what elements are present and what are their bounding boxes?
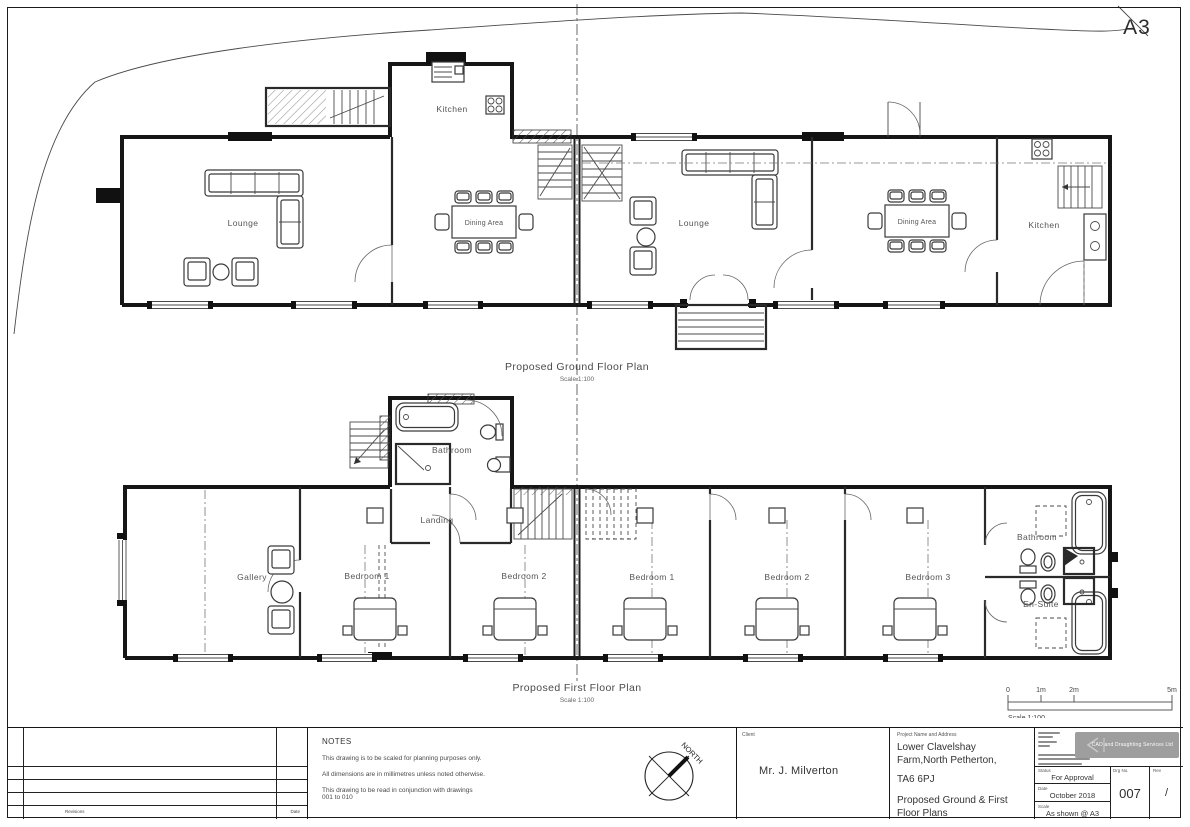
north-arrow: NORTH bbox=[632, 734, 708, 812]
date-cell: Date October 2018 bbox=[1035, 784, 1110, 802]
status-label: Status bbox=[1038, 768, 1051, 773]
company-fine-print bbox=[1038, 732, 1068, 750]
scale-label: Scale bbox=[1038, 804, 1049, 809]
drg-no-cell: Drg No. 007 bbox=[1110, 766, 1150, 819]
project-label: Project Name and Address bbox=[897, 732, 1034, 738]
project-panel: Project Name and Address Lower Clavelsha… bbox=[890, 728, 1035, 819]
client-name: Mr. J. Milverton bbox=[759, 765, 838, 777]
project-title-2: Floor Plans bbox=[897, 807, 1034, 820]
project-postcode: TA6 6PJ bbox=[897, 774, 1034, 785]
revisions-footer-label: Revisions bbox=[65, 809, 85, 814]
drg-no-label: Drg No. bbox=[1113, 768, 1129, 773]
scale-cell: Scale As shown @ A3 bbox=[1035, 802, 1110, 820]
project-address-2: Farm,North Petherton, bbox=[897, 754, 1034, 767]
client-label: Client bbox=[742, 732, 755, 738]
rev-cell: Rev / bbox=[1150, 766, 1183, 819]
status-cell: Status For Approval bbox=[1035, 766, 1110, 784]
revisions-table: Revisions Date bbox=[7, 728, 308, 819]
revisions-date-label: Date bbox=[290, 809, 300, 814]
rev-label: Rev bbox=[1153, 768, 1161, 773]
title-block: Revisions Date NOTES This drawing is to … bbox=[7, 727, 1183, 819]
client-panel: Client Mr. J. Milverton bbox=[737, 728, 890, 819]
project-address-1: Lower Clavelshay bbox=[897, 741, 1034, 754]
date-label: Date bbox=[1038, 786, 1048, 791]
company-logo-text: CAD and Draughting Services Ltd bbox=[1092, 742, 1173, 748]
sheet-border bbox=[7, 7, 1181, 818]
company-panel: CAD and Draughting Services Ltd Status F… bbox=[1035, 728, 1183, 819]
notes-panel: NOTES This drawing is to be scaled for p… bbox=[308, 728, 737, 819]
drawing-sheet: A3 bbox=[0, 0, 1190, 827]
company-logo: CAD and Draughting Services Ltd bbox=[1075, 732, 1179, 758]
project-title-1: Proposed Ground & First bbox=[897, 794, 1034, 807]
